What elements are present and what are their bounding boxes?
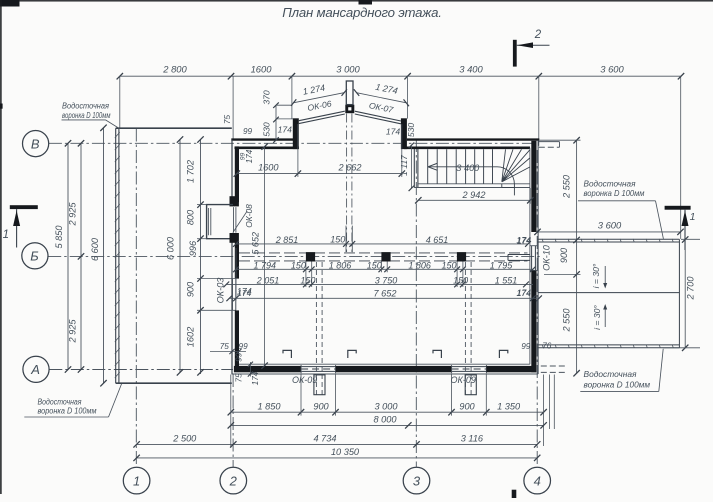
svg-text:1 117: 1 117 — [399, 154, 409, 176]
svg-text:ОК-03: ОК-03 — [216, 277, 226, 304]
svg-text:2 800: 2 800 — [162, 64, 187, 75]
svg-text:900: 900 — [313, 401, 329, 411]
svg-text:2 851: 2 851 — [275, 235, 299, 245]
svg-text:3 400: 3 400 — [456, 163, 480, 173]
svg-text:150: 150 — [330, 235, 345, 245]
svg-text:10 350: 10 350 — [331, 447, 360, 457]
svg-text:Б: Б — [30, 249, 39, 264]
svg-text:174: 174 — [251, 371, 260, 385]
svg-text:6 600: 6 600 — [90, 237, 100, 261]
svg-text:1 794: 1 794 — [254, 260, 277, 270]
svg-text:Водосточная: Водосточная — [584, 369, 638, 379]
svg-text:3 400: 3 400 — [459, 64, 483, 75]
svg-text:2 500: 2 500 — [172, 434, 197, 444]
svg-text:4 734: 4 734 — [314, 434, 337, 444]
svg-text:2 051: 2 051 — [256, 276, 280, 286]
svg-text:99: 99 — [234, 352, 243, 362]
svg-text:900: 900 — [185, 281, 195, 297]
svg-text:8 000: 8 000 — [374, 415, 398, 425]
svg-text:2 700: 2 700 — [685, 276, 695, 301]
svg-text:370: 370 — [262, 90, 272, 105]
svg-text:1 795: 1 795 — [490, 260, 514, 270]
svg-text:ОК-08: ОК-08 — [244, 204, 254, 228]
svg-text:900: 900 — [559, 247, 569, 263]
svg-text:3 750: 3 750 — [375, 276, 398, 286]
svg-text:1: 1 — [133, 473, 140, 488]
svg-text:174: 174 — [516, 288, 531, 298]
svg-text:2: 2 — [534, 29, 542, 41]
svg-text:150: 150 — [291, 260, 306, 270]
svg-text:150: 150 — [441, 260, 456, 270]
svg-text:2: 2 — [229, 473, 238, 488]
svg-text:2 942: 2 942 — [462, 190, 486, 200]
svg-text:3 000: 3 000 — [375, 401, 399, 411]
svg-text:ОК-09: ОК-09 — [292, 375, 317, 385]
svg-text:996: 996 — [188, 240, 198, 256]
svg-text:174: 174 — [386, 127, 401, 137]
svg-text:ОК-10: ОК-10 — [542, 244, 552, 271]
svg-text:воронка D 100мм: воронка D 100мм — [38, 406, 97, 416]
svg-text:6 000: 6 000 — [166, 236, 176, 260]
svg-text:2 925: 2 925 — [68, 319, 78, 344]
svg-text:3: 3 — [413, 473, 421, 488]
svg-text:В: В — [31, 136, 40, 151]
svg-text:1 806: 1 806 — [408, 260, 431, 270]
svg-text:1600: 1600 — [251, 64, 273, 75]
svg-text:1: 1 — [690, 211, 696, 223]
svg-text:воронка D 100мм: воронка D 100мм — [62, 110, 111, 120]
svg-text:174: 174 — [278, 125, 293, 135]
svg-text:1: 1 — [3, 229, 9, 241]
svg-text:174: 174 — [516, 235, 531, 245]
svg-text:ОК-09: ОК-09 — [451, 375, 476, 385]
svg-text:150: 150 — [367, 260, 382, 270]
svg-text:75: 75 — [220, 342, 230, 351]
svg-text:4 651: 4 651 — [426, 235, 449, 245]
svg-text:800: 800 — [185, 209, 195, 225]
svg-text:1 551: 1 551 — [495, 276, 518, 286]
svg-text:7 652: 7 652 — [374, 289, 397, 299]
svg-text:3 600: 3 600 — [600, 64, 624, 75]
svg-text:900: 900 — [459, 401, 475, 411]
svg-text:75: 75 — [235, 373, 244, 383]
svg-text:А: А — [30, 362, 40, 377]
svg-text:1 850: 1 850 — [258, 401, 282, 411]
svg-text:5 652: 5 652 — [250, 232, 260, 255]
svg-text:3 600: 3 600 — [598, 219, 622, 230]
svg-text:1 702: 1 702 — [185, 160, 195, 183]
svg-text:воронка D 100мм: воронка D 100мм — [584, 379, 651, 389]
svg-text:99: 99 — [243, 127, 253, 136]
svg-text:99: 99 — [521, 342, 531, 351]
svg-text:1602: 1602 — [185, 327, 195, 347]
svg-text:i = 30°: i = 30° — [592, 305, 602, 330]
svg-text:3 000: 3 000 — [336, 64, 360, 75]
svg-text:2 550: 2 550 — [561, 174, 571, 199]
svg-text:174: 174 — [237, 288, 252, 298]
svg-text:530: 530 — [261, 122, 271, 137]
svg-text:2 925: 2 925 — [68, 202, 78, 227]
svg-text:5 850: 5 850 — [54, 225, 64, 249]
svg-text:76: 76 — [542, 342, 552, 351]
svg-text:воронка D 100мм: воронка D 100мм — [584, 188, 645, 198]
svg-text:530: 530 — [406, 123, 416, 138]
svg-text:1 806: 1 806 — [329, 260, 352, 270]
svg-text:i = 30°: i = 30° — [591, 263, 601, 288]
svg-text:174: 174 — [245, 149, 254, 163]
svg-text:2 550: 2 550 — [561, 308, 571, 333]
svg-text:150: 150 — [453, 276, 468, 286]
svg-text:План мансардного этажа.: План мансардного этажа. — [282, 5, 442, 20]
svg-text:150: 150 — [300, 276, 315, 286]
svg-text:75: 75 — [223, 115, 232, 125]
svg-text:2 662: 2 662 — [338, 162, 362, 172]
svg-text:1600: 1600 — [258, 162, 279, 172]
svg-text:3 116: 3 116 — [461, 434, 484, 444]
svg-text:4: 4 — [534, 473, 541, 488]
svg-text:1 350: 1 350 — [497, 401, 521, 411]
svg-text:Водосточная: Водосточная — [584, 178, 637, 188]
